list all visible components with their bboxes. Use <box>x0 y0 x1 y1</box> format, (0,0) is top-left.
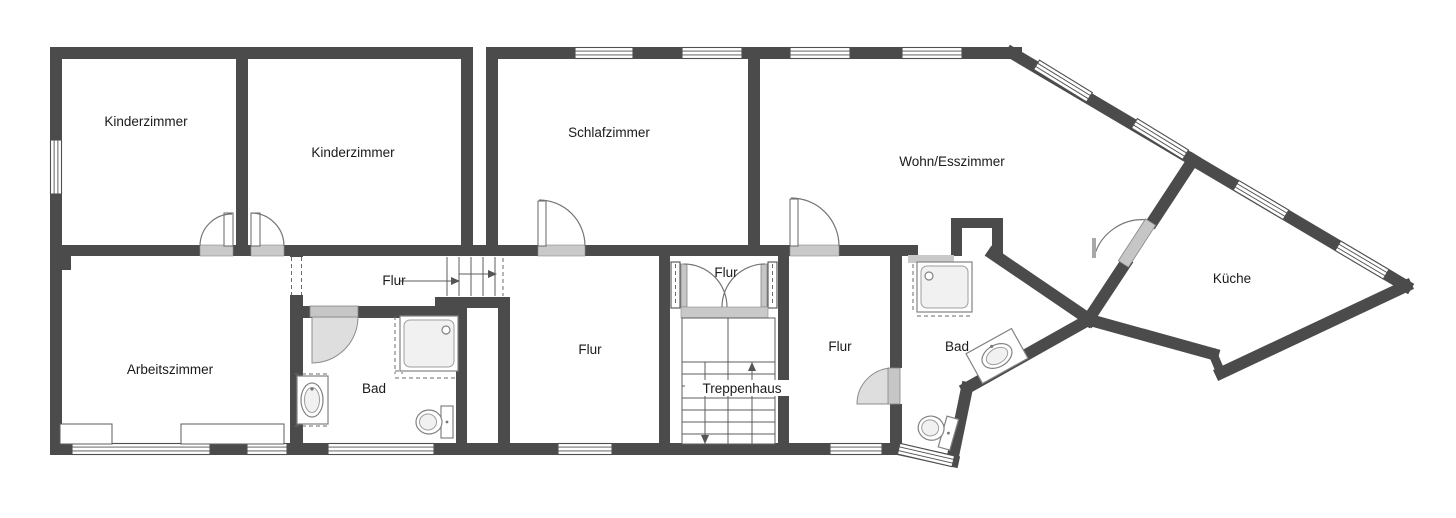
sink <box>295 374 328 426</box>
door-bad-1 <box>310 306 358 363</box>
window <box>830 444 882 455</box>
window <box>1335 241 1389 279</box>
door-kueche <box>1094 219 1156 267</box>
wall-kueche-left-a <box>1153 160 1193 221</box>
built-in-cabinet <box>60 424 112 444</box>
wall-kinderzimmer2-right <box>461 47 473 256</box>
chimney-top <box>951 218 1003 228</box>
room-label-flur-small: Flur <box>714 265 738 280</box>
room-label-schlafzimmer: Schlafzimmer <box>568 125 650 140</box>
shaft-notch <box>473 46 486 60</box>
window <box>51 140 62 194</box>
furniture <box>60 424 284 444</box>
wall-kueche-bottomright <box>1221 286 1406 373</box>
window <box>328 444 434 455</box>
doors <box>200 198 1156 404</box>
wall-schlafzimmer-right <box>748 47 760 245</box>
room-label-flur-center: Flur <box>578 342 602 357</box>
window <box>247 444 287 455</box>
wall-bad2-left-lower <box>890 404 902 445</box>
wall-treppenhaus-left <box>659 256 670 447</box>
room-label-treppenhaus: Treppenhaus <box>702 381 781 396</box>
wall-mid-4 <box>585 245 790 256</box>
built-in-cabinet <box>181 424 284 444</box>
door-bad-2 <box>857 368 900 404</box>
window <box>575 48 633 59</box>
wall-top <box>50 47 1022 59</box>
bathroom-2-fixtures <box>913 262 1028 450</box>
staircase-upper <box>400 257 497 296</box>
shower <box>395 316 458 378</box>
wall-bad2-topright <box>993 254 1090 320</box>
door-wohn-esszimmer <box>790 198 839 256</box>
wall-kueche-bottomleft <box>1090 320 1213 354</box>
room-label-flur-upper: Flur <box>382 273 406 288</box>
wall-mid-1 <box>50 245 200 256</box>
wall-kinderzimmer-divider <box>236 47 248 256</box>
room-label-kinderzimmer-1: Kinderzimmer <box>104 114 188 129</box>
shower <box>913 262 972 316</box>
room-label-kueche: Küche <box>1213 271 1251 286</box>
wall-bad2-left-upper <box>890 256 902 368</box>
room-label-flur-right: Flur <box>828 339 852 354</box>
window <box>72 444 210 455</box>
wall-niche-right <box>498 297 510 443</box>
wall-stub <box>58 256 71 270</box>
wall-mid-2 <box>233 245 251 256</box>
passage-arbeitszimmer <box>290 257 303 295</box>
window <box>682 48 742 59</box>
wall-mid-5 <box>839 245 918 256</box>
wall-mid-3 <box>284 245 538 256</box>
door-schlafzimmer <box>538 200 585 256</box>
window <box>558 444 612 455</box>
wall-treppenhaus-right <box>778 256 789 447</box>
floor-plan: Kinderzimmer Kinderzimmer Schlafzimmer W… <box>0 0 1456 518</box>
room-label-kinderzimmer-2: Kinderzimmer <box>311 145 395 160</box>
sink <box>966 329 1028 384</box>
window <box>1132 119 1189 160</box>
door-kinderzimmer-1 <box>200 213 233 256</box>
room-label-bad-2: Bad <box>945 339 969 354</box>
toilet <box>416 406 453 438</box>
toilet <box>914 409 958 450</box>
room-label-bad-1: Bad <box>362 381 386 396</box>
wall-kueche-left-b <box>1088 264 1125 320</box>
room-label-arbeitszimmer: Arbeitszimmer <box>127 362 214 377</box>
window <box>790 48 850 59</box>
window <box>1233 181 1289 220</box>
window <box>902 48 962 59</box>
window <box>1034 60 1093 102</box>
wall-schlafzimmer-left <box>486 47 498 256</box>
door-kinderzimmer-2 <box>251 213 284 256</box>
room-label-wohn-esszimmer: Wohn/Esszimmer <box>899 154 1005 169</box>
